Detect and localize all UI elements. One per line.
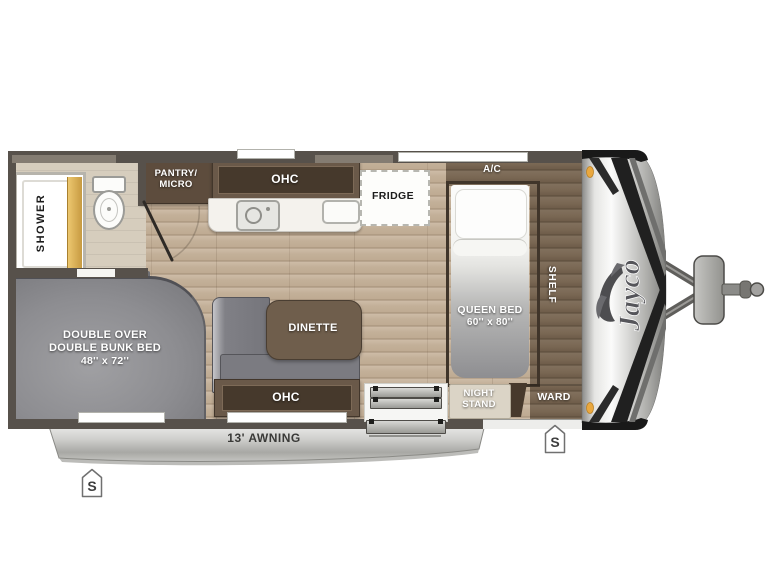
- bathroom-bunk-wall-gap: [77, 269, 115, 277]
- queen-bed-label-line2: 60'' x 80'': [448, 317, 532, 330]
- front-cap: Jayco: [577, 145, 677, 435]
- sink-icon: [322, 200, 360, 224]
- shower-label: SHOWER: [35, 183, 49, 263]
- stove-icon: [236, 200, 280, 231]
- entry-step-outer: [366, 420, 446, 434]
- pantry-label-line2: MICRO: [140, 179, 212, 190]
- speaker-marker-left: S: [81, 468, 103, 498]
- window: [78, 412, 165, 423]
- window: [237, 149, 295, 159]
- top-wall-light-segment: [12, 155, 116, 163]
- hitch-tongue: [722, 284, 742, 295]
- entry-step: [370, 398, 442, 409]
- queen-sheet-fold: [453, 240, 527, 256]
- awning-label: 13' AWNING: [227, 431, 300, 445]
- night-stand-label-line2: STAND: [449, 399, 509, 410]
- pantry-label-line1: PANTRY/: [140, 168, 212, 179]
- bathroom-door: [138, 196, 208, 266]
- step-ground-line: [369, 435, 441, 437]
- bunk-label-line2: DOUBLE BUNK BED: [25, 342, 185, 355]
- queen-bed-label-line1: QUEEN BED: [448, 304, 532, 317]
- stove-burner: [245, 207, 262, 224]
- ward-divider: [530, 384, 584, 386]
- top-wall-light-segment: [315, 155, 393, 163]
- clearance-light-icon: [587, 167, 594, 178]
- shelf-label: SHELF: [541, 250, 557, 320]
- speaker-marker-right: S: [544, 424, 566, 454]
- ohc-bottom-label: OHC: [222, 390, 350, 404]
- ohc-top-label: OHC: [218, 172, 352, 186]
- rear-wall: [8, 151, 16, 428]
- ward-label: WARD: [524, 391, 584, 403]
- jayco-logo-text: Jayco: [613, 259, 646, 332]
- clearance-light-icon: [587, 403, 594, 414]
- bunk-label-line1: DOUBLE OVER: [25, 329, 185, 342]
- shower: [14, 172, 86, 278]
- rv-floorplan: SHOWER PANTRY/ MICRO OHC FRIDGE A/C QUEE…: [0, 0, 768, 575]
- fridge-label: FRIDGE: [360, 190, 426, 202]
- dinette-label: DINETTE: [266, 322, 360, 334]
- bottom-wall-white-segment: [483, 419, 583, 429]
- speaker-marker-letter: S: [87, 478, 96, 494]
- bunk-label-line3: 48'' x 72'': [25, 355, 185, 368]
- speaker-marker-letter: S: [550, 434, 559, 450]
- toilet-bowl: [93, 190, 125, 230]
- hitch-coupler: [740, 281, 751, 298]
- shower-door: [67, 177, 82, 269]
- queen-pillow: [455, 189, 527, 239]
- toilet-drain: [107, 207, 111, 211]
- ac-label: A/C: [460, 164, 524, 175]
- queen-bed: [451, 185, 529, 378]
- window: [398, 152, 528, 162]
- propane-tank-cover: [694, 256, 724, 324]
- stove-knob: [266, 207, 270, 211]
- hitch-ball: [751, 283, 764, 296]
- night-stand-label-line1: NIGHT: [449, 388, 509, 399]
- window: [227, 412, 347, 423]
- entry-step: [370, 387, 442, 398]
